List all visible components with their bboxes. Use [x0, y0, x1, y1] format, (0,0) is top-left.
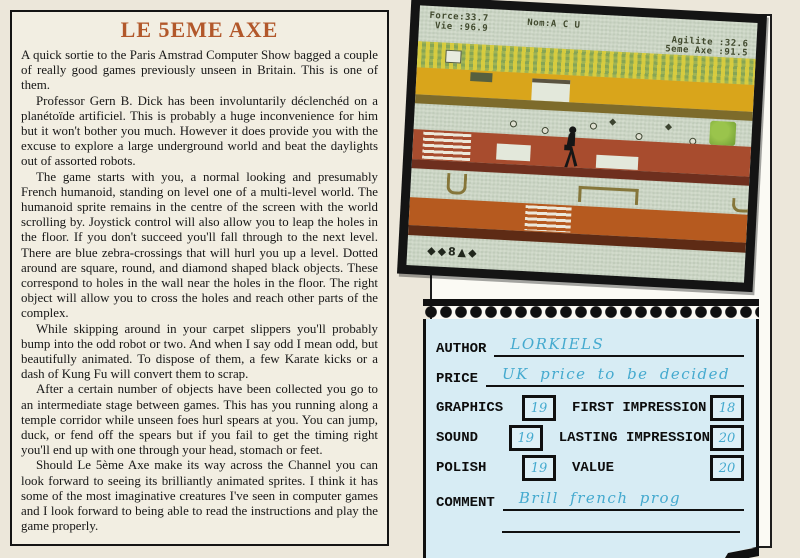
score-card-body: AUTHOR LORKIELS PRICE UK price to be dec… [423, 319, 759, 541]
magazine-page: LE 5EME AXE A quick sortie to the Paris … [0, 0, 800, 558]
article-paragraph: Should Le 5ème Axe make its way across t… [21, 458, 378, 534]
price-field: UK price to be decided [486, 364, 744, 387]
polish-score-box: 19 [522, 455, 556, 481]
article-paragraph: While skipping around in your carpet sli… [21, 322, 378, 383]
zebra-crossing [422, 132, 471, 161]
torn-bottom-edge-icon [423, 541, 759, 558]
score-row: SOUND 19 LASTING IMPRESSION 20 [436, 425, 744, 451]
article-paragraph: The game starts with you, a normal looki… [21, 170, 378, 322]
article-paragraph: After a certain number of objects have b… [21, 382, 378, 458]
round-object [635, 133, 642, 140]
diamond-object [665, 123, 672, 130]
graphics-score: 19 [531, 401, 548, 416]
first-impression-score-box: 18 [710, 395, 744, 421]
game-screenshot-photo: Force:33.7 Nom:A C U Vie :96.9 Agilite :… [397, 0, 767, 292]
first-impression-score: 18 [719, 401, 736, 416]
diamond-object [609, 119, 616, 126]
review-article: LE 5EME AXE A quick sortie to the Paris … [10, 10, 389, 546]
polish-label: POLISH [436, 460, 522, 476]
platform-hole [496, 144, 531, 162]
author-label: AUTHOR [436, 341, 486, 357]
author-handwriting: LORKIELS [510, 335, 604, 353]
author-row: AUTHOR LORKIELS [436, 335, 744, 357]
collected-items-icons: ◆◆8▲◆ [427, 244, 479, 260]
pipe-structure [578, 186, 639, 205]
price-row: PRICE UK price to be decided [436, 365, 744, 387]
lasting-impression-score-box: 20 [710, 425, 744, 451]
score-row: GRAPHICS 19 FIRST IMPRESSION 18 [436, 395, 744, 421]
pipe-structure [732, 198, 755, 213]
comment-handwriting: Brill french prog [519, 489, 681, 507]
comment-label: COMMENT [436, 495, 495, 511]
blank-comment-line [502, 525, 740, 533]
round-object [590, 122, 597, 129]
pipe-structure [446, 173, 467, 195]
value-score-box: 20 [710, 455, 744, 481]
torn-spiral-edge-icon [423, 299, 759, 319]
hud-name: Nom:A C U [527, 18, 581, 31]
lasting-impression-score: 20 [719, 431, 736, 446]
score-card: AUTHOR LORKIELS PRICE UK price to be dec… [423, 299, 759, 558]
article-paragraph: A quick sortie to the Paris Amstrad Comp… [21, 48, 378, 94]
price-handwriting: UK price to be decided [502, 365, 730, 383]
green-object [709, 121, 736, 146]
lasting-impression-label: LASTING IMPRESSION [559, 430, 710, 446]
hud-life: Vie :96.9 [435, 21, 489, 34]
platform-hole [596, 155, 639, 170]
sound-score: 19 [517, 431, 534, 446]
game-screen: Force:33.7 Nom:A C U Vie :96.9 Agilite :… [406, 5, 757, 282]
graphics-score-box: 19 [522, 395, 556, 421]
sound-label: SOUND [436, 430, 509, 446]
first-impression-label: FIRST IMPRESSION [572, 400, 710, 416]
round-object [541, 127, 548, 134]
sound-score-box: 19 [509, 425, 543, 451]
polish-score: 19 [531, 461, 548, 476]
wall-hatch [445, 50, 462, 64]
platform-hole [470, 72, 492, 82]
player-character-sprite [558, 125, 586, 172]
value-score: 20 [719, 461, 736, 476]
article-paragraph: Professor Gern B. Dick has been involunt… [21, 94, 378, 170]
platform-hole [531, 78, 570, 102]
zebra-crossing [524, 205, 571, 232]
value-label: VALUE [572, 460, 710, 476]
round-object [510, 120, 517, 127]
score-row: POLISH 19 VALUE 20 [436, 455, 744, 481]
author-field: LORKIELS [494, 334, 744, 357]
graphics-label: GRAPHICS [436, 400, 522, 416]
price-label: PRICE [436, 371, 478, 387]
comment-field: Brill french prog [503, 488, 744, 511]
comment-row: COMMENT Brill french prog [436, 489, 744, 511]
article-title: LE 5EME AXE [21, 17, 378, 43]
